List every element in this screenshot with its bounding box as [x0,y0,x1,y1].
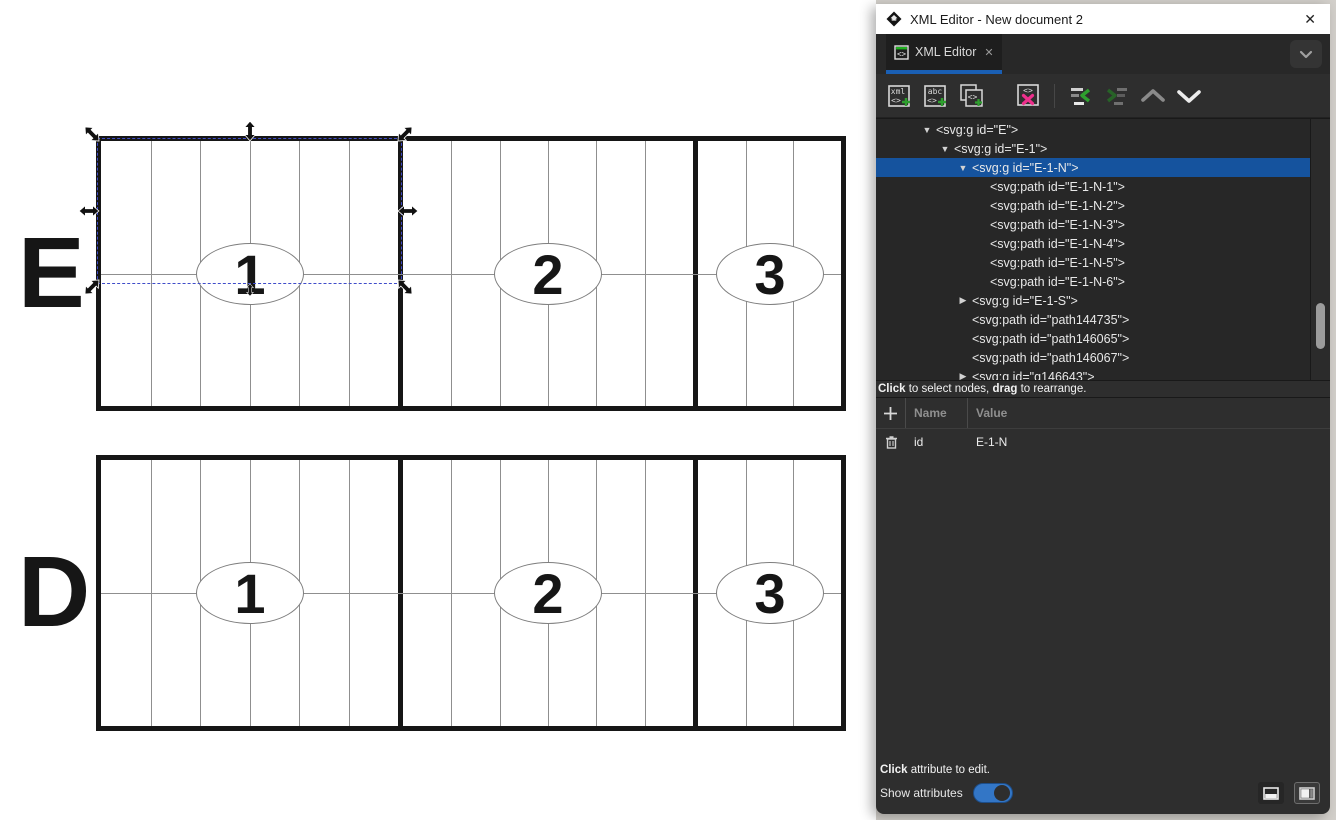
strip-label-E: E [18,223,85,323]
expander-collapsed-icon[interactable]: ▶ [954,371,972,380]
plus-icon [883,406,898,421]
toolbar-separator [1054,84,1055,108]
scale-handle-arrow-icon[interactable] [397,202,419,220]
xml-tree-node[interactable]: ▶<svg:g id="E-1-S"> [876,291,1310,310]
add-attribute-button[interactable] [876,398,906,428]
xml-node-label: <svg:path id="E-1-N-2"> [990,199,1125,213]
vertical-split-layout-button[interactable] [1294,782,1320,804]
tab-label: XML Editor [915,45,976,59]
panel-number-ellipse: 2 [494,562,602,624]
attributes-header: Name Value [876,398,1330,429]
trash-icon [885,435,898,449]
expander-collapsed-icon[interactable]: ▶ [954,295,972,306]
panel-number-D-2: 2 [532,564,563,622]
xml-tree-node[interactable]: <svg:path id="E-1-N-4"> [876,234,1310,253]
panel-column-line [151,460,152,726]
dialog-footer: Click attribute to edit. Show attributes [876,760,1330,814]
xml-tree-node[interactable]: <svg:path id="E-1-N-2"> [876,196,1310,215]
xml-tree-panel: ▼<svg:g id="E">▼<svg:g id="E-1">▼<svg:g … [876,118,1330,381]
xml-node-label: <svg:path id="E-1-N-6"> [990,275,1125,289]
tree-scrollbar[interactable] [1310,119,1330,380]
xml-node-label: <svg:path id="E-1-N-4"> [990,237,1125,251]
xml-node-label: <svg:g id="E-1"> [954,142,1047,156]
xml-editor-dialog: XML Editor - New document 2 ✕ <> XML Edi… [876,4,1330,814]
move-node-down-button[interactable] [1173,80,1205,112]
unindent-node-button[interactable] [1065,80,1097,112]
tab-close-icon[interactable]: ✕ [984,46,993,59]
xml-node-label: <svg:path id="E-1-N-3"> [990,218,1125,232]
tab-list-dropdown-button[interactable] [1290,40,1322,68]
new-text-node-icon: abc <> [923,83,949,109]
panel-number-ellipse: 3 [716,243,824,305]
xml-editor-tab-icon: <> [894,45,909,60]
panel-number-E-3: 3 [754,245,785,303]
indent-node-button [1101,80,1133,112]
xml-node-label: <svg:g id="g146643"> [972,370,1095,381]
dialog-close-icon[interactable]: ✕ [1300,11,1320,28]
move-node-down-icon [1175,87,1203,105]
show-attributes-label: Show attributes [880,786,963,800]
unindent-node-icon [1068,83,1094,109]
svg-text:<>: <> [1023,86,1033,95]
xml-node-label: <svg:path id="path146067"> [972,351,1129,365]
delete-attribute-button[interactable] [876,435,906,449]
xml-tree-node[interactable]: ▼<svg:g id="E-1-N"> [876,158,1310,177]
panel-number-ellipse: 3 [716,562,824,624]
duplicate-node-button[interactable]: <> [956,80,988,112]
svg-text:<>: <> [891,96,901,105]
scale-handle-arrow-icon[interactable] [244,283,255,297]
inkscape-logo-icon [886,11,902,27]
move-node-up-icon [1139,87,1167,105]
xml-tree-node[interactable]: <svg:path id="E-1-N-5"> [876,253,1310,272]
comic-strip-D: 123 [96,455,846,731]
xml-node-label: <svg:g id="E"> [936,123,1018,137]
xml-tree-node[interactable]: <svg:path id="path144735"> [876,310,1310,329]
scale-handle-arrow-icon[interactable] [78,202,100,220]
attribute-value[interactable]: E-1-N [968,435,1330,449]
expander-expanded-icon[interactable]: ▼ [918,125,936,135]
svg-text:abc: abc [928,87,943,96]
attribute-name[interactable]: id [906,435,968,449]
xml-tree-node[interactable]: <svg:path id="E-1-N-1"> [876,177,1310,196]
delete-node-icon: <> [1015,83,1041,109]
attribute-row[interactable]: idE-1-N [876,429,1330,455]
horizontal-split-layout-button[interactable] [1258,782,1284,804]
panel-number-ellipse: 1 [196,562,304,624]
panel-number-D-1: 1 [234,564,265,622]
strip-label-D: D [18,542,90,642]
svg-text:<>: <> [927,96,937,105]
move-node-up-button [1137,80,1169,112]
xml-toolbar: xml <> abc <> <> <> [876,74,1330,118]
scale-handle-arrow-icon[interactable] [241,120,259,142]
xml-tree[interactable]: ▼<svg:g id="E">▼<svg:g id="E-1">▼<svg:g … [876,119,1310,380]
panel-column-line [451,460,452,726]
panel-number-ellipse: 2 [494,243,602,305]
new-text-node-button[interactable]: abc <> [920,80,952,112]
attributes-name-header: Name [906,398,968,428]
duplicate-node-icon: <> [959,83,985,109]
panel-number-D-3: 3 [754,564,785,622]
dialog-titlebar[interactable]: XML Editor - New document 2 ✕ [876,4,1330,34]
attribute-hint: Click attribute to edit. [878,764,1320,776]
xml-node-label: <svg:g id="E-1-N"> [972,161,1079,175]
new-element-node-icon: xml <> [887,83,913,109]
panel-column-line [349,460,350,726]
svg-text:<>: <> [968,92,978,101]
xml-node-label: <svg:path id="path144735"> [972,313,1129,327]
dialog-tabbar: <> XML Editor ✕ [876,34,1330,74]
horizontal-split-layout-icon [1263,787,1279,800]
expander-expanded-icon[interactable]: ▼ [936,144,954,154]
xml-node-label: <svg:path id="E-1-N-1"> [990,180,1125,194]
panel-column-line [645,460,646,726]
xml-tree-node[interactable]: ▼<svg:g id="E"> [876,120,1310,139]
inkscape-canvas[interactable]: 123E123D [0,0,876,820]
panel-number-E-2: 2 [532,245,563,303]
attributes-table: idE-1-N [876,429,1330,455]
show-attributes-toggle[interactable] [973,783,1013,803]
tree-hint-bar: Click to select nodes, drag to rearrange… [876,381,1330,398]
tab-xml-editor[interactable]: <> XML Editor ✕ [886,34,1002,74]
xml-node-label: <svg:path id="path146065"> [972,332,1129,346]
chevron-down-icon [1299,50,1313,59]
xml-node-label: <svg:path id="E-1-N-5"> [990,256,1125,270]
xml-node-label: <svg:g id="E-1-S"> [972,294,1078,308]
tree-scrollbar-thumb[interactable] [1316,303,1325,349]
dialog-title: XML Editor - New document 2 [910,12,1292,27]
attributes-value-header: Value [968,406,1330,420]
xml-tree-node[interactable]: <svg:path id="E-1-N-3"> [876,215,1310,234]
xml-tree-node[interactable]: ▶<svg:g id="g146643"> [876,367,1310,380]
xml-tree-node[interactable]: ▼<svg:g id="E-1"> [876,139,1310,158]
panel-column-line [451,141,452,406]
vertical-split-layout-icon [1299,787,1315,800]
selection-rect[interactable] [97,138,402,284]
xml-tree-node[interactable]: <svg:path id="path146065"> [876,329,1310,348]
expander-expanded-icon[interactable]: ▼ [954,163,972,173]
svg-text:<>: <> [897,49,907,58]
indent-node-icon [1104,83,1130,109]
xml-tree-node[interactable]: <svg:path id="E-1-N-6"> [876,272,1310,291]
xml-tree-node[interactable]: <svg:path id="path146067"> [876,348,1310,367]
svg-text:xml: xml [891,87,906,96]
new-element-node-button[interactable]: xml <> [884,80,916,112]
attributes-empty-area [876,455,1330,760]
delete-node-button[interactable]: <> [1012,80,1044,112]
panel-column-line [645,141,646,406]
